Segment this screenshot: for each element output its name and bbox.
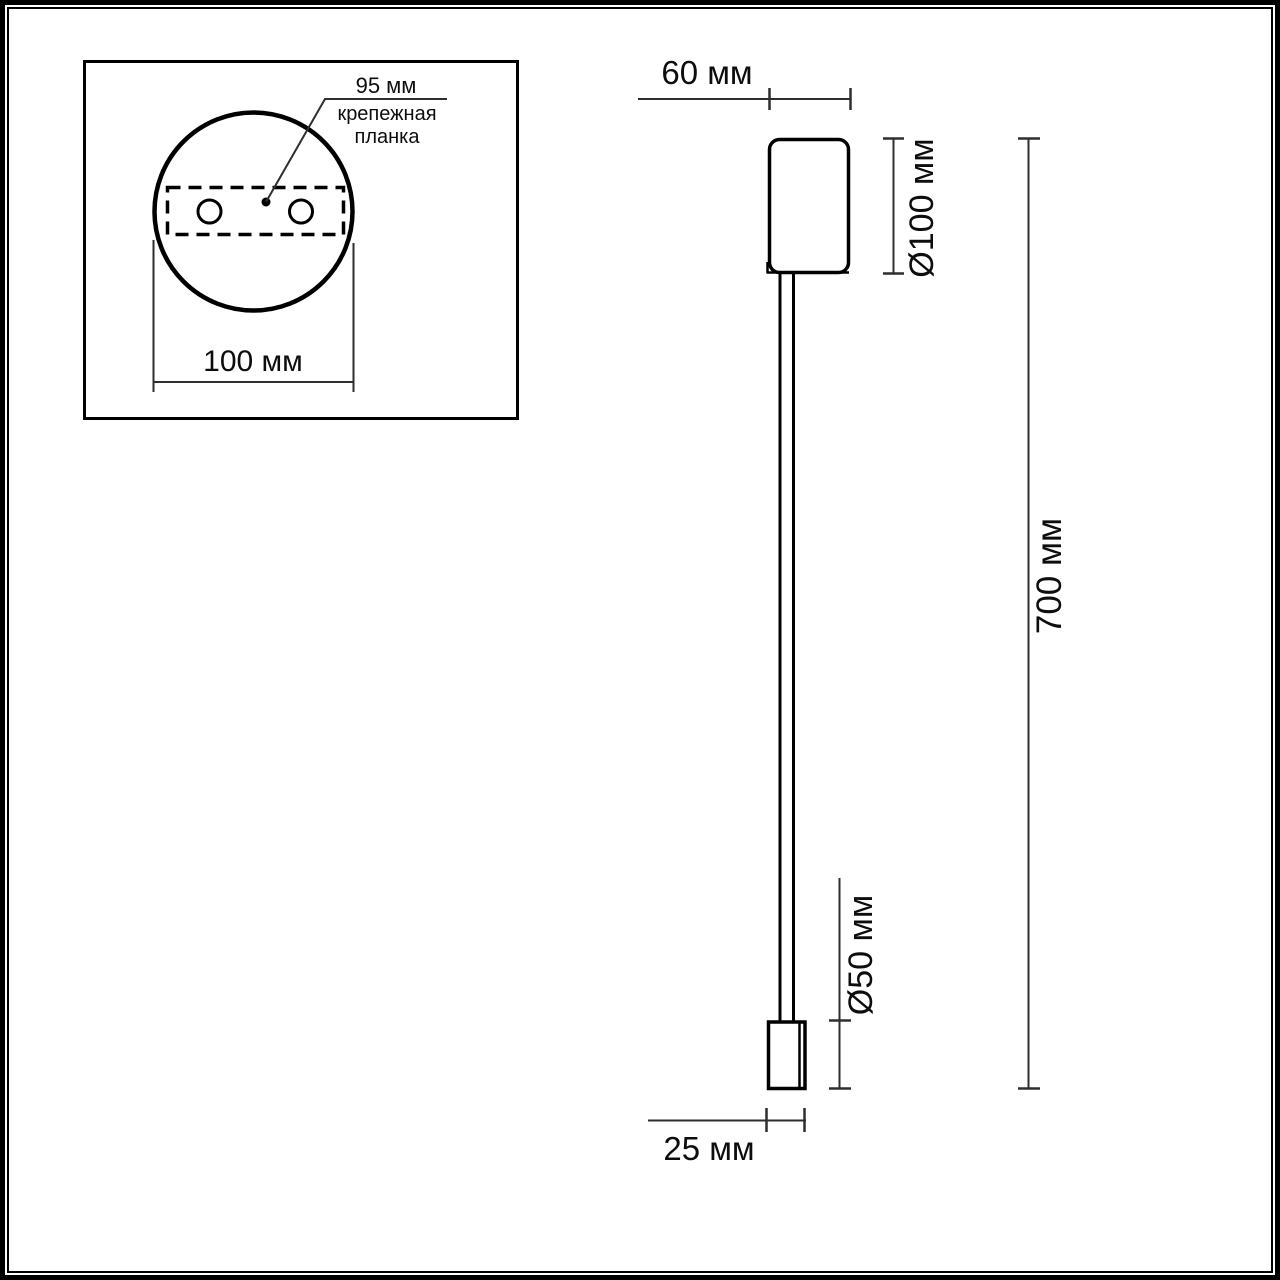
drawing-linework (0, 0, 1280, 1280)
bracket-width-label: 95 мм (286, 72, 486, 99)
overall-height-label: 700 мм (1031, 426, 1069, 726)
lamp-mount-body (770, 140, 849, 273)
dimension-drawing-page: 95 мм крепежная планка 100 мм 60 мм Ø100… (0, 0, 1280, 1280)
mounting-hole-left (198, 200, 221, 223)
mounting-hole-right (290, 200, 313, 223)
bracket-name-label: крепежная планка (287, 103, 487, 149)
mount-depth-label: 60 мм (557, 54, 857, 92)
mount-diameter-label: Ø100 мм (903, 58, 941, 358)
plate-width-label: 100 мм (103, 344, 403, 380)
tip-diameter-label: Ø50 мм (842, 805, 880, 1105)
mount-diameter-dimension (883, 138, 904, 274)
tip-width-label: 25 мм (559, 1130, 859, 1168)
tip-width-dimension (648, 1108, 806, 1132)
mounting-bracket-dashed-outline (168, 188, 344, 235)
